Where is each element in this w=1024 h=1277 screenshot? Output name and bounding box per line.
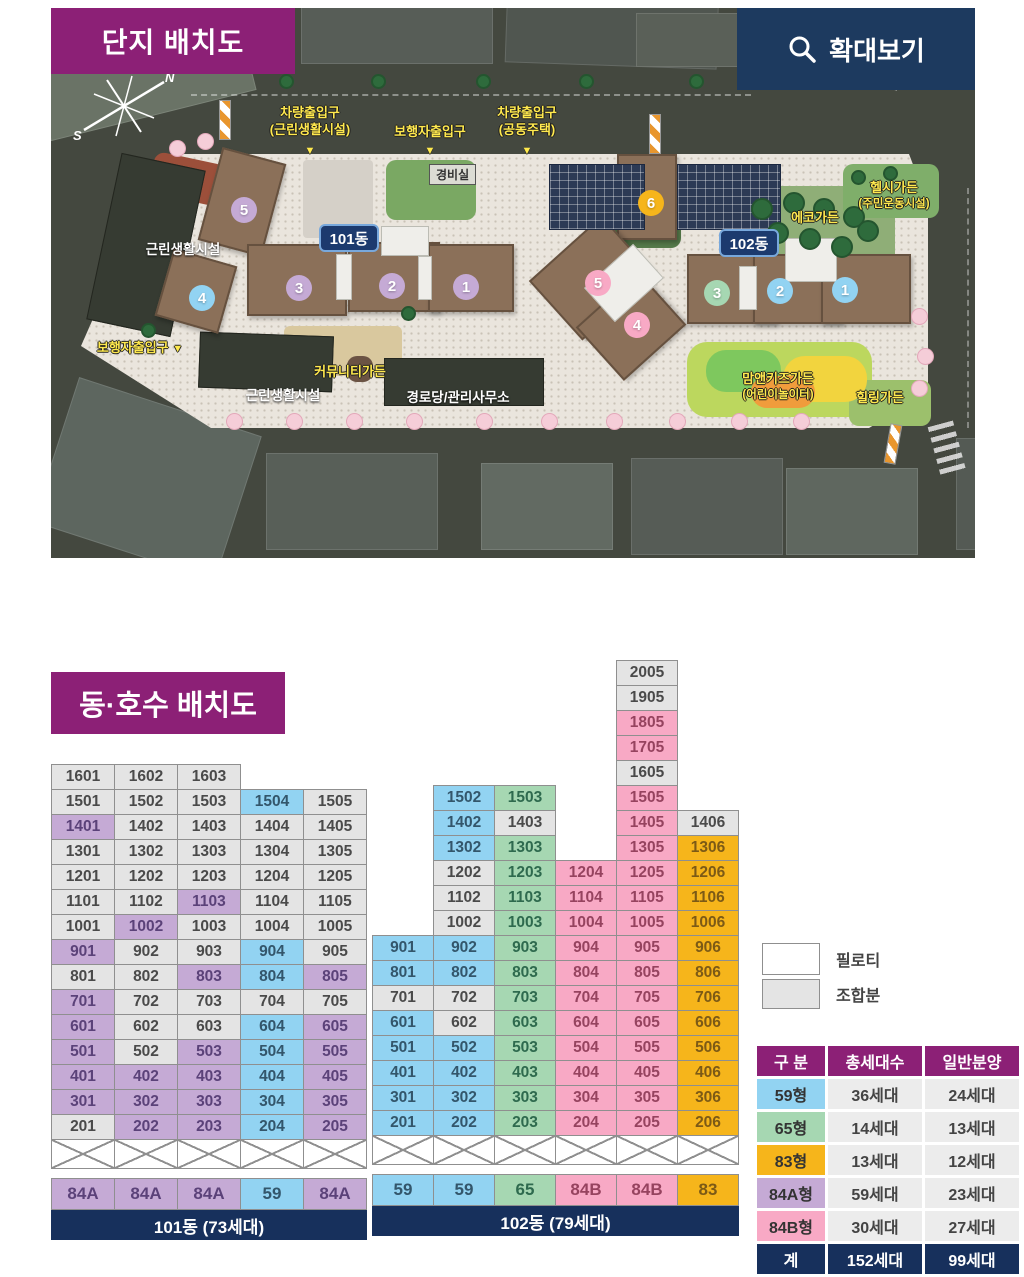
grid-floor-row: 701702703704705706 — [372, 985, 739, 1011]
unit-type-cell: 59 — [372, 1174, 434, 1206]
summary-grand-total-cell: 152세대 — [828, 1244, 922, 1274]
unit-cell: 703 — [177, 989, 241, 1015]
unit-type-cell: 83 — [677, 1174, 739, 1206]
unit-cell: 904 — [555, 935, 617, 961]
piloti-row — [372, 1135, 739, 1165]
unit-cell: 1106 — [677, 885, 739, 911]
unit-cell: 1303 — [494, 835, 556, 861]
grid-floor-row: 12021203120412051206 — [372, 860, 739, 886]
site-plan-section: N S 차량출입구 (근린생활시설) ▼ 보행자출입구 ▼ 차량출입구 (공동주… — [51, 8, 975, 558]
building-footer: 101동 (73세대) — [51, 1210, 367, 1240]
unit-cell: 503 — [177, 1039, 241, 1065]
piloti-cell — [51, 1139, 115, 1169]
grid-floor-row: 801802803804805806 — [372, 960, 739, 986]
entrance-arrow-icon: ▼ — [172, 343, 183, 355]
unit-cell: 1203 — [177, 864, 241, 890]
unit-layout-title: 동·호수 배치도 — [51, 672, 285, 734]
community-garden-label: 커뮤니티가든 — [314, 364, 386, 381]
unit-cell: 701 — [372, 985, 434, 1011]
piloti-cell — [177, 1139, 241, 1169]
unit-cell: 706 — [677, 985, 739, 1011]
unit-cell: 802 — [433, 960, 495, 986]
piloti-cell — [240, 1139, 304, 1169]
summary-table: 구 분총세대수일반분양59형36세대24세대65형14세대13세대83형13세대… — [757, 1046, 1019, 1277]
unit-cell: 501 — [372, 1035, 434, 1061]
unit-cell: 806 — [677, 960, 739, 986]
grid-floor-row: 701702703704705 — [51, 989, 367, 1015]
grid-floor-row: 601602603604605606 — [372, 1010, 739, 1036]
unit-cell: 1501 — [51, 789, 115, 815]
unit-cell: 704 — [240, 989, 304, 1015]
unit-cell: 1205 — [616, 860, 678, 886]
unit-cell: 1404 — [240, 814, 304, 840]
unit-type-cell: 84B — [555, 1174, 617, 1206]
building-unit-marker: 1 — [453, 274, 479, 300]
entrance-arrow-icon: ▼ — [425, 145, 436, 157]
unit-cell: 803 — [177, 964, 241, 990]
compass-icon: N S — [69, 66, 179, 151]
unit-type-cell: 84A — [51, 1178, 115, 1210]
unit-cell: 1304 — [240, 839, 304, 865]
label-line: 맘앤키즈가든 — [742, 371, 814, 388]
unit-cell: 601 — [372, 1010, 434, 1036]
grid-floor-row: 1402140314051406 — [372, 810, 739, 836]
grid-floor-row: 13011302130313041305 — [51, 839, 367, 865]
vehicle-entrance-housing-label: 차량출입구 (공동주택) — [497, 105, 557, 139]
unit-cell: 205 — [616, 1110, 678, 1136]
legend-label: 필로티 — [836, 947, 880, 971]
unit-cell: 506 — [677, 1035, 739, 1061]
unit-cell: 605 — [303, 1014, 367, 1040]
unit-cell: 405 — [303, 1064, 367, 1090]
unit-cell: 402 — [114, 1064, 178, 1090]
piloti-cell — [303, 1139, 367, 1169]
unit-cell: 1602 — [114, 764, 178, 790]
building-101-badge: 101동 — [319, 224, 379, 252]
unit-cell: 902 — [114, 939, 178, 965]
building-unit-marker: 2 — [767, 278, 793, 304]
unit-cell: 205 — [303, 1114, 367, 1140]
unit-cell: 305 — [303, 1089, 367, 1115]
unit-type-cell: 59 — [240, 1178, 304, 1210]
unit-cell: 906 — [677, 935, 739, 961]
zoom-button-label: 확대보기 — [829, 31, 925, 68]
unit-cell: 202 — [114, 1114, 178, 1140]
unit-cell: 1805 — [616, 710, 678, 736]
building-unit-marker: 6 — [638, 190, 664, 216]
unit-cell: 1502 — [433, 785, 495, 811]
building-unit-marker: 3 — [704, 280, 730, 306]
vehicle-entrance-retail-label: 차량출입구 (근린생활시설) — [270, 105, 350, 139]
grid-floor-row: 501502503504505 — [51, 1039, 367, 1065]
grid-floor-row: 201202203204205206 — [372, 1110, 739, 1136]
unit-cell: 302 — [114, 1089, 178, 1115]
unit-cell: 801 — [372, 960, 434, 986]
grid-floor-row: 11021103110411051106 — [372, 885, 739, 911]
label-line: 헬시가든 — [858, 180, 929, 197]
grid-floor-row: 201202203204205 — [51, 1114, 367, 1140]
unit-cell: 1403 — [494, 810, 556, 836]
grid-floor-row: 11011102110311041105 — [51, 889, 367, 915]
summary-type-cell: 83형 — [757, 1145, 825, 1175]
unit-cell: 505 — [303, 1039, 367, 1065]
unit-cell: 303 — [177, 1089, 241, 1115]
unit-type-row: 84A84A84A5984A — [51, 1178, 367, 1210]
unit-layout-section: 동·호수 배치도 1601160216031501150215031504150… — [0, 558, 1024, 1265]
entrance-arrow-icon: ▼ — [305, 145, 316, 157]
unit-cell: 201 — [51, 1114, 115, 1140]
unit-cell: 204 — [555, 1110, 617, 1136]
unit-cell: 903 — [494, 935, 556, 961]
unit-cell: 401 — [372, 1060, 434, 1086]
unit-cell: 1201 — [51, 864, 115, 890]
unit-cell: 206 — [677, 1110, 739, 1136]
unit-cell: 405 — [616, 1060, 678, 1086]
summary-row: 계152세대99세대 — [757, 1244, 1019, 1274]
grid-floor-row: 1705 — [372, 735, 739, 761]
summary-general-sale-cell: 13세대 — [925, 1112, 1019, 1142]
building-unit-marker: 5 — [231, 197, 257, 223]
legend: 필로티 조합분 — [762, 943, 880, 1013]
summary-type-cell: 59형 — [757, 1079, 825, 1109]
unit-cell: 901 — [51, 939, 115, 965]
unit-cell: 1406 — [677, 810, 739, 836]
piloti-cell — [494, 1135, 556, 1165]
summary-total-units-cell: 13세대 — [828, 1145, 922, 1175]
unit-cell: 1302 — [114, 839, 178, 865]
unit-cell: 304 — [555, 1085, 617, 1111]
unit-cell: 304 — [240, 1089, 304, 1115]
building-unit-marker: 4 — [624, 312, 650, 338]
unit-cell: 505 — [616, 1035, 678, 1061]
unit-cell: 1504 — [240, 789, 304, 815]
grid-floor-row: 301302303304305306 — [372, 1085, 739, 1111]
grid-floor-row: 2005 — [372, 660, 739, 686]
grid-floor-row: 150215031505 — [372, 785, 739, 811]
unit-cell: 1503 — [177, 789, 241, 815]
unit-cell: 403 — [177, 1064, 241, 1090]
building-unit-marker: 3 — [286, 275, 312, 301]
unit-cell: 804 — [240, 964, 304, 990]
unit-cell: 704 — [555, 985, 617, 1011]
unit-cell: 1101 — [51, 889, 115, 915]
piloti-cell — [555, 1135, 617, 1165]
neighborhood-facility-upper-label: 근린생활시설 — [146, 238, 221, 258]
unit-type-cell: 84B — [616, 1174, 678, 1206]
unit-cell: 1405 — [616, 810, 678, 836]
building-102-badge: 102동 — [719, 229, 779, 257]
unit-cell: 1003 — [177, 914, 241, 940]
unit-cell: 404 — [555, 1060, 617, 1086]
unit-cell: 204 — [240, 1114, 304, 1140]
label-line: (어린이놀이터) — [742, 388, 814, 403]
piloti-cell — [677, 1135, 739, 1165]
grid-floor-row: 901902903904905906 — [372, 935, 739, 961]
healthy-garden-label: 헬시가든 (주민운동시설) — [858, 180, 929, 212]
unit-cell: 1102 — [433, 885, 495, 911]
grid-floor-row: 10021003100410051006 — [372, 910, 739, 936]
piloti-row — [51, 1139, 367, 1169]
unit-cell: 1305 — [303, 839, 367, 865]
unit-cell: 1401 — [51, 814, 115, 840]
unit-cell: 1403 — [177, 814, 241, 840]
unit-cell: 1004 — [555, 910, 617, 936]
unit-cell: 305 — [616, 1085, 678, 1111]
unit-cell: 201 — [372, 1110, 434, 1136]
unit-cell: 1001 — [51, 914, 115, 940]
summary-row: 구 분총세대수일반분양 — [757, 1046, 1019, 1076]
unit-cell: 603 — [494, 1010, 556, 1036]
unit-cell: 904 — [240, 939, 304, 965]
grid-floor-row: 1905 — [372, 685, 739, 711]
piloti-cell — [433, 1135, 495, 1165]
grid-floor-row: 301302303304305 — [51, 1089, 367, 1115]
unit-cell: 604 — [555, 1010, 617, 1036]
unit-cell: 1306 — [677, 835, 739, 861]
label-line: 차량출입구 — [270, 105, 350, 122]
piloti-cell — [616, 1135, 678, 1165]
unit-cell: 602 — [433, 1010, 495, 1036]
summary-type-cell: 65형 — [757, 1112, 825, 1142]
mom-kids-garden-label: 맘앤키즈가든 (어린이놀이터) — [742, 371, 814, 403]
unit-cell: 1104 — [240, 889, 304, 915]
unit-cell: 605 — [616, 1010, 678, 1036]
unit-cell: 403 — [494, 1060, 556, 1086]
unit-cell: 1002 — [114, 914, 178, 940]
unit-cell: 502 — [433, 1035, 495, 1061]
unit-cell: 901 — [372, 935, 434, 961]
unit-cell: 1206 — [677, 860, 739, 886]
label-line: (근린생활시설) — [270, 122, 350, 139]
unit-cell: 1104 — [555, 885, 617, 911]
unit-cell: 602 — [114, 1014, 178, 1040]
summary-general-sale-cell: 12세대 — [925, 1145, 1019, 1175]
summary-type-cell: 84A형 — [757, 1178, 825, 1208]
summary-row: 84B형30세대27세대 — [757, 1211, 1019, 1241]
legend-label: 조합분 — [836, 982, 880, 1006]
unit-cell: 902 — [433, 935, 495, 961]
unit-cell: 504 — [240, 1039, 304, 1065]
compass-south-label: S — [73, 128, 82, 143]
unit-cell: 203 — [177, 1114, 241, 1140]
building-unit-marker: 2 — [379, 273, 405, 299]
unit-type-cell: 84A — [303, 1178, 367, 1210]
unit-grid-102: 2005190518051705160515021503150514021403… — [372, 660, 739, 1236]
healing-garden-label: 힐링가든 — [856, 390, 904, 407]
unit-cell: 203 — [494, 1110, 556, 1136]
summary-total-units-cell: 14세대 — [828, 1112, 922, 1142]
pedestrian-entrance-top-label: 보행자출입구 — [394, 124, 466, 141]
unit-cell: 805 — [303, 964, 367, 990]
unit-cell: 501 — [51, 1039, 115, 1065]
unit-cell: 1601 — [51, 764, 115, 790]
unit-cell: 1303 — [177, 839, 241, 865]
summary-grand-total-cell: 99세대 — [925, 1244, 1019, 1274]
unit-cell: 905 — [303, 939, 367, 965]
unit-cell: 601 — [51, 1014, 115, 1040]
summary-row: 59형36세대24세대 — [757, 1079, 1019, 1109]
unit-cell: 1105 — [616, 885, 678, 911]
unit-type-cell: 84A — [177, 1178, 241, 1210]
unit-cell: 1505 — [303, 789, 367, 815]
pedestrian-entrance-left-label: 보행자출입구 ▼ — [97, 340, 183, 357]
unit-cell: 1302 — [433, 835, 495, 861]
grid-floor-row: 401402403404405 — [51, 1064, 367, 1090]
piloti-swatch — [762, 943, 820, 975]
zoom-in-button[interactable]: 확대보기 — [737, 8, 975, 90]
senior-center-label: 경로당/관리사무소 — [406, 386, 509, 406]
summary-total-units-cell: 59세대 — [828, 1178, 922, 1208]
neighborhood-facility-lower-label: 근린생활시설 — [246, 384, 321, 404]
summary-total-units-cell: 36세대 — [828, 1079, 922, 1109]
unit-type-row: 59596584B84B83 — [372, 1174, 739, 1206]
unit-cell: 301 — [51, 1089, 115, 1115]
grid-floor-row: 601602603604605 — [51, 1014, 367, 1040]
unit-cell: 1003 — [494, 910, 556, 936]
unit-cell: 502 — [114, 1039, 178, 1065]
grid-floor-row: 15011502150315041505 — [51, 789, 367, 815]
unit-cell: 703 — [494, 985, 556, 1011]
unit-cell: 1705 — [616, 735, 678, 761]
eco-garden-label: 에코가든 — [791, 210, 839, 227]
unit-cell: 905 — [616, 935, 678, 961]
unit-cell: 705 — [303, 989, 367, 1015]
unit-cell: 702 — [433, 985, 495, 1011]
unit-cell: 603 — [177, 1014, 241, 1040]
unit-cell: 801 — [51, 964, 115, 990]
unit-cell: 1605 — [616, 760, 678, 786]
grid-floor-row: 1805 — [372, 710, 739, 736]
legend-item-piloti: 필로티 — [762, 943, 880, 975]
unit-cell: 303 — [494, 1085, 556, 1111]
summary-header-cell: 구 분 — [757, 1046, 825, 1076]
label-line: (공동주택) — [497, 122, 557, 139]
grid-floor-row: 1605 — [372, 760, 739, 786]
unit-cell: 1305 — [616, 835, 678, 861]
unit-cell: 1005 — [616, 910, 678, 936]
unit-cell: 903 — [177, 939, 241, 965]
unit-cell: 805 — [616, 960, 678, 986]
unit-cell: 1202 — [114, 864, 178, 890]
summary-type-cell: 84B형 — [757, 1211, 825, 1241]
summary-header-cell: 총세대수 — [828, 1046, 922, 1076]
site-plan-title: 단지 배치도 — [51, 8, 295, 74]
label-line: 보행자출입구 — [394, 124, 466, 139]
summary-row: 65형14세대13세대 — [757, 1112, 1019, 1142]
unit-cell: 1006 — [677, 910, 739, 936]
entrance-arrow-icon: ▼ — [522, 145, 533, 157]
unit-cell: 606 — [677, 1010, 739, 1036]
unit-cell: 2005 — [616, 660, 678, 686]
summary-total-units-cell: 30세대 — [828, 1211, 922, 1241]
summary-grand-total-cell: 계 — [757, 1244, 825, 1274]
label-line: 차량출입구 — [497, 105, 557, 122]
building-unit-marker: 1 — [832, 277, 858, 303]
unit-cell: 1102 — [114, 889, 178, 915]
unit-cell: 1205 — [303, 864, 367, 890]
unit-cell: 604 — [240, 1014, 304, 1040]
unit-cell: 402 — [433, 1060, 495, 1086]
unit-cell: 1002 — [433, 910, 495, 936]
grid-floor-row: 12011202120312041205 — [51, 864, 367, 890]
guard-post-label: 경비실 — [429, 164, 476, 185]
grid-floor-row: 10011002100310041005 — [51, 914, 367, 940]
summary-general-sale-cell: 27세대 — [925, 1211, 1019, 1241]
building-unit-marker: 5 — [585, 270, 611, 296]
summary-row: 84A형59세대23세대 — [757, 1178, 1019, 1208]
unit-cell: 301 — [372, 1085, 434, 1111]
building-footer: 102동 (79세대) — [372, 1206, 739, 1236]
unit-type-cell: 84A — [114, 1178, 178, 1210]
unit-cell: 804 — [555, 960, 617, 986]
grid-floor-row: 501502503504505506 — [372, 1035, 739, 1061]
unit-grid-101: 1601160216031501150215031504150514011402… — [51, 764, 367, 1240]
unit-cell: 1603 — [177, 764, 241, 790]
unit-cell: 1103 — [177, 889, 241, 915]
grid-floor-row: 14011402140314041405 — [51, 814, 367, 840]
unit-cell: 802 — [114, 964, 178, 990]
unit-cell: 803 — [494, 960, 556, 986]
unit-cell: 1204 — [555, 860, 617, 886]
unit-cell: 1402 — [114, 814, 178, 840]
unit-cell: 401 — [51, 1064, 115, 1090]
unit-cell: 1105 — [303, 889, 367, 915]
unit-cell: 1004 — [240, 914, 304, 940]
building-unit-marker: 4 — [189, 285, 215, 311]
unit-type-cell: 59 — [433, 1174, 495, 1206]
unit-cell: 306 — [677, 1085, 739, 1111]
legend-item-union: 조합분 — [762, 979, 880, 1009]
unit-cell: 1204 — [240, 864, 304, 890]
unit-cell: 302 — [433, 1085, 495, 1111]
unit-cell: 1402 — [433, 810, 495, 836]
summary-general-sale-cell: 23세대 — [925, 1178, 1019, 1208]
unit-cell: 406 — [677, 1060, 739, 1086]
grid-floor-row: 160116021603 — [51, 764, 367, 790]
grid-floor-row: 1302130313051306 — [372, 835, 739, 861]
unit-cell: 1503 — [494, 785, 556, 811]
unit-type-cell: 65 — [494, 1174, 556, 1206]
unit-cell: 202 — [433, 1110, 495, 1136]
grid-floor-row: 901902903904905 — [51, 939, 367, 965]
unit-cell: 1202 — [433, 860, 495, 886]
summary-header-cell: 일반분양 — [925, 1046, 1019, 1076]
unit-cell: 1203 — [494, 860, 556, 886]
unit-cell: 1301 — [51, 839, 115, 865]
unit-cell: 1005 — [303, 914, 367, 940]
unit-cell: 1103 — [494, 885, 556, 911]
summary-general-sale-cell: 24세대 — [925, 1079, 1019, 1109]
unit-cell: 404 — [240, 1064, 304, 1090]
unit-cell: 503 — [494, 1035, 556, 1061]
unit-cell: 504 — [555, 1035, 617, 1061]
unit-cell: 701 — [51, 989, 115, 1015]
label-line: 보행자출입구 — [97, 340, 169, 355]
unit-cell: 1405 — [303, 814, 367, 840]
magnifier-icon — [787, 34, 817, 64]
union-swatch — [762, 979, 820, 1009]
unit-cell: 705 — [616, 985, 678, 1011]
unit-cell: 1905 — [616, 685, 678, 711]
unit-cell: 1505 — [616, 785, 678, 811]
piloti-cell — [372, 1135, 434, 1165]
piloti-cell — [114, 1139, 178, 1169]
label-line: (주민운동시설) — [858, 197, 929, 212]
grid-floor-row: 801802803804805 — [51, 964, 367, 990]
grid-floor-row: 401402403404405406 — [372, 1060, 739, 1086]
unit-cell: 1502 — [114, 789, 178, 815]
summary-row: 83형13세대12세대 — [757, 1145, 1019, 1175]
